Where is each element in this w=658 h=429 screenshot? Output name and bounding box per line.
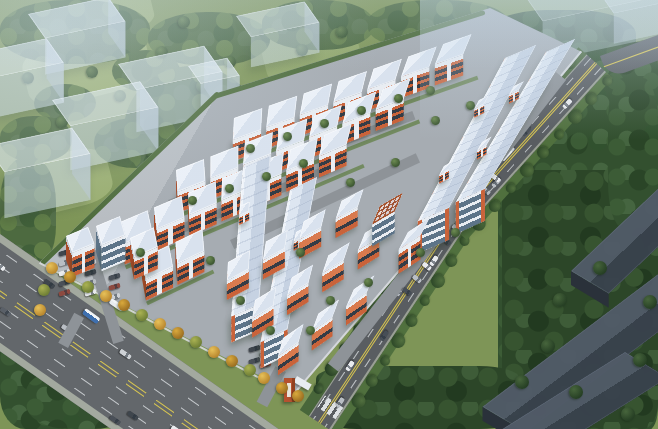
campus-tree [306,326,315,335]
campus-tree [262,172,271,181]
campus-tree [296,248,305,257]
tree [633,353,647,367]
tree [336,26,348,38]
autumn-tree [64,271,76,283]
autumn-tree [46,262,58,274]
campus-tree [136,248,145,257]
autumn-tree [292,390,304,402]
scene [0,0,658,429]
tree [86,66,98,78]
campus-tree [431,116,440,125]
tree [515,375,529,389]
autumn-tree [276,382,288,394]
campus-tree [188,196,197,205]
autumn-tree [190,336,202,348]
campus-tree [364,278,373,287]
autumn-tree [208,346,220,358]
tree [593,261,607,275]
tree [643,295,657,309]
campus-tree [357,106,366,115]
campus-tree [346,178,355,187]
car [127,410,140,421]
campus-tree [394,94,403,103]
campus-tree [246,144,255,153]
campus-tree [206,256,215,265]
tree [553,293,567,307]
autumn-tree [258,372,270,384]
campus-tree [426,86,435,95]
campus-tree [391,158,400,167]
tree [569,385,583,399]
autumn-tree [38,284,50,296]
autumn-tree [154,318,166,330]
autumn-tree [118,299,130,311]
autumn-tree [136,309,148,321]
autumn-tree [172,327,184,339]
campus-tree [451,228,460,237]
campus-tree [326,296,335,305]
street-tree [418,294,432,308]
car [119,348,133,360]
autumn-tree [100,290,112,302]
autumn-tree [34,304,46,316]
campus-tree [416,248,425,257]
autumn-tree [226,355,238,367]
tree [178,16,190,28]
car [170,425,184,429]
autumn-tree [244,364,256,376]
autumn-tree [82,281,94,293]
tree [621,407,635,421]
campus-tree [236,296,245,305]
campus-tree [225,184,234,193]
campus-tree [466,101,475,110]
campus-tree [266,326,275,335]
tree [541,339,555,353]
aerial-site-rendering: { "meta": {"width": 658, "height": 429, … [0,0,658,429]
campus-tree [320,119,329,128]
campus-tree [283,132,292,141]
car [0,306,12,317]
campus-tree [299,159,308,168]
